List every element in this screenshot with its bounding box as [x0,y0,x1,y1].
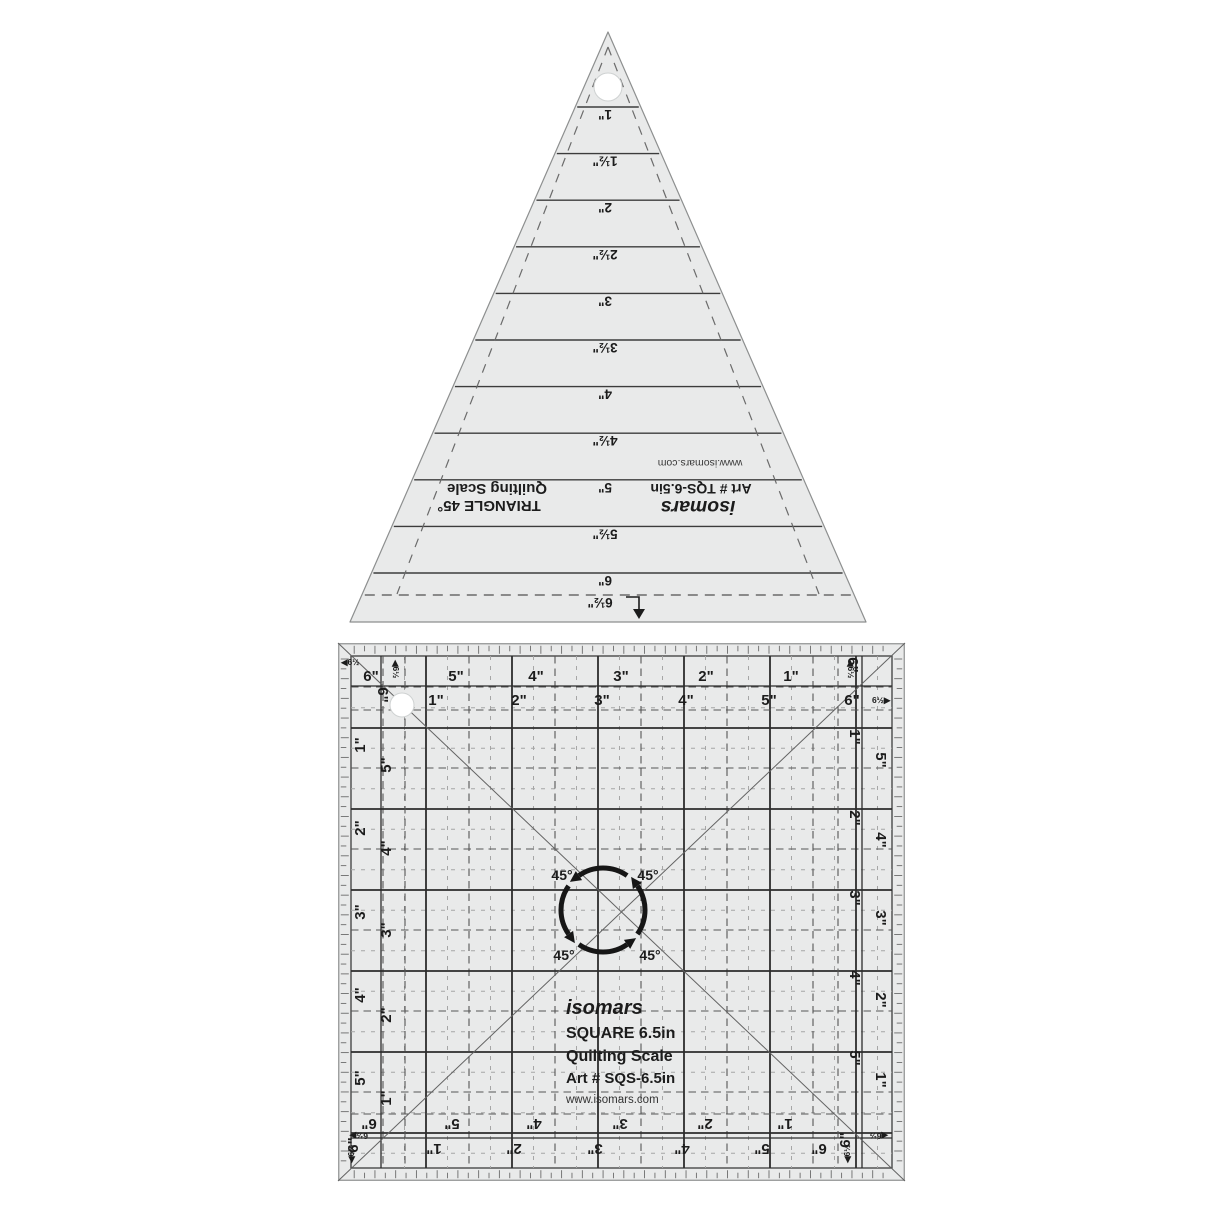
rulers-illustration: 1"1½"2"2½"3"3½"4"4½"5"5½"6"6½" www.isoma… [0,0,1214,1214]
square-measure-label: 1" [846,729,863,744]
brand-website: www.isomars.com [565,1094,659,1106]
square-measure-label: 2" [698,668,713,685]
triangle-measure-label: 1½" [592,154,617,169]
square-measure-label: 6" [361,1115,376,1132]
square-measure-label: 5" [378,757,395,772]
corner-six-label: 6" [374,687,391,702]
product-art-number: Art # TQS-6.5in [650,481,751,497]
brand-logo: isomars [566,997,643,1019]
angle-label: 45° [637,867,658,883]
square-measure-label: 3" [612,1115,627,1132]
corner-size-marker: ◀6½ [842,1145,852,1164]
square-measure-label: 5" [754,1140,769,1157]
square-measure-label: 4" [674,1140,689,1157]
angle-label: 45° [553,947,574,963]
triangle-measure-label: 3½" [592,340,617,355]
square-measure-label: 4" [378,840,395,855]
square-measure-label: 2" [697,1115,712,1132]
square-measure-label: 5" [448,668,463,685]
hanging-hole-icon [594,73,622,101]
square-measure-label: 4" [872,832,889,847]
corner-size-marker: 6½▶ [872,695,892,705]
square-measure-label: 3" [613,668,628,685]
triangle-measure-label: 6" [598,573,612,588]
corner-size-marker: ◀6½ [340,657,359,667]
corner-size-marker: ◀6½ [846,659,856,678]
product-title: TRIANGLE 45° [437,497,541,514]
square-measure-label: 4" [352,987,369,1002]
square-measure-label: 1" [777,1115,792,1132]
corner-size-marker: 6½▶ [348,1131,368,1141]
square-measure-label: 3" [872,910,889,925]
angle-label: 45° [639,947,660,963]
hanging-hole-icon [390,693,414,717]
square-measure-label: 2" [506,1140,521,1157]
square-measure-label: 4" [526,1115,541,1132]
square-measure-label: 1" [352,737,369,752]
square-measure-label: 6" [844,692,859,709]
square-measure-label: 2" [511,692,526,709]
square-measure-label: 1" [783,668,798,685]
brand-logo: isomars [660,496,735,518]
square-measure-label: 3" [594,692,609,709]
square-measure-label: 2" [846,810,863,825]
corner-size-marker: ◀6½ [870,1131,889,1141]
brand-website: www.isomars.com [657,457,743,469]
square-measure-label: 1" [872,1072,889,1087]
square-measure-label: 5" [761,692,776,709]
angle-label: 45° [551,867,572,883]
product-subtitle: Quilting Scale [447,480,547,497]
square-measure-label: 3" [846,890,863,905]
square-measure-label: 5" [872,752,889,767]
square-measure-label: 6" [811,1140,826,1157]
triangle-measure-label: 2" [598,200,612,215]
triangle-measure-label: 1" [598,107,612,122]
square-ruler: 45° 45° 45° 45° isomars SQUARE 6.5in Qui… [338,643,905,1181]
square-measure-label: 4" [678,692,693,709]
square-measure-label: 3" [587,1140,602,1157]
square-measure-label: 3" [352,904,369,919]
square-measure-label: 5" [352,1070,369,1085]
product-subtitle: Quilting Scale [566,1048,673,1065]
triangle-measure-label: 6½" [587,595,612,610]
triangle-measure-label: 4½" [592,433,617,448]
product-title: SQUARE 6.5in [566,1025,675,1042]
triangle-measure-label: 5" [598,480,612,495]
triangle-ruler: 1"1½"2"2½"3"3½"4"4½"5"5½"6"6½" www.isoma… [350,32,866,622]
triangle-measure-label: 4" [598,387,612,402]
square-measure-label: 5" [444,1115,459,1132]
square-measure-label: 1" [428,692,443,709]
square-measure-label: 4" [528,668,543,685]
product-photo: 1"1½"2"2½"3"3½"4"4½"5"5½"6"6½" www.isoma… [0,0,1214,1214]
square-measure-label: 2" [378,1007,395,1022]
corner-size-marker: ◀6½ [391,659,401,678]
square-measure-label: 3" [378,922,395,937]
corner-size-marker: ◀6½ [346,1145,356,1164]
square-measure-label: 4" [846,970,863,985]
triangle-measure-label: 3" [598,293,612,308]
square-measure-label: 5" [846,1050,863,1065]
triangle-measure-label: 2½" [592,247,617,262]
square-measure-label: 6" [363,668,378,685]
square-measure-label: 2" [872,992,889,1007]
square-measure-label: 1" [378,1090,395,1105]
triangle-measure-label: 5½" [592,526,617,541]
product-art-number: Art # SQS-6.5in [566,1070,675,1087]
square-measure-label: 2" [352,820,369,835]
square-measure-label: 1" [426,1140,441,1157]
